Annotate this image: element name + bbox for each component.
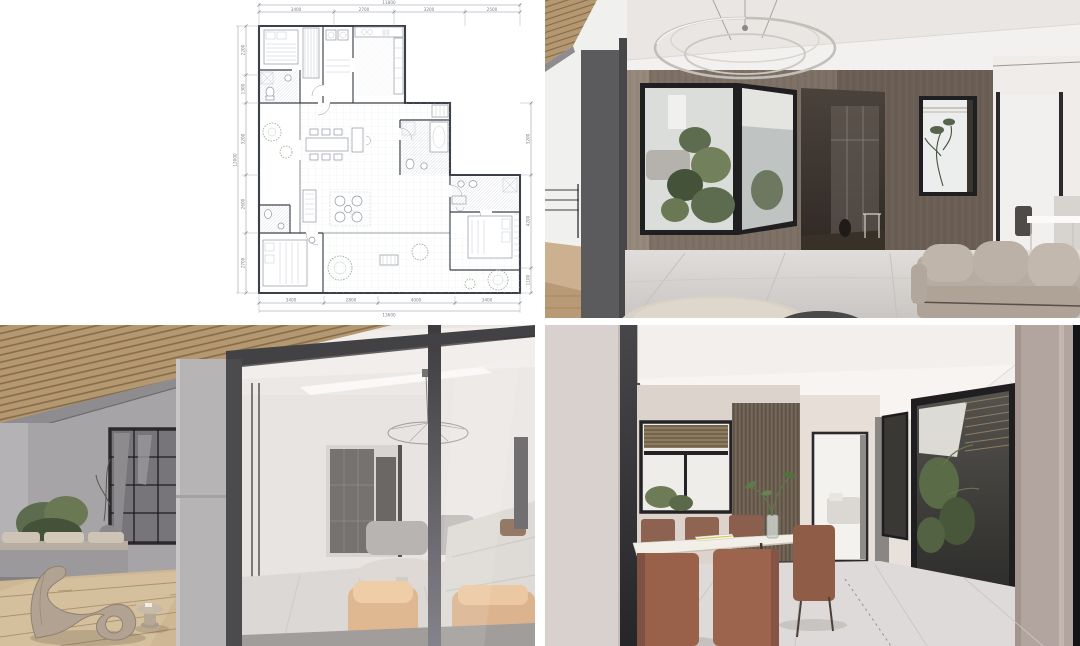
mauve-wall xyxy=(1015,325,1073,646)
plan-kitchen xyxy=(355,27,403,96)
door-leaf xyxy=(860,435,866,559)
right-black-frame xyxy=(1073,325,1080,646)
small-window xyxy=(883,413,907,539)
interior-window-blinds xyxy=(641,422,731,512)
plan-bath-topleft xyxy=(260,71,298,102)
terrace-window xyxy=(110,429,182,543)
dim-top-3: 3200 xyxy=(424,7,435,12)
dim-top-4: 2500 xyxy=(487,7,498,12)
plan-wardrobe-topleft xyxy=(303,28,319,78)
beige-sofa xyxy=(911,241,1080,318)
dim-left-2: 1300 xyxy=(241,83,246,94)
bedroom-bed-glimpse xyxy=(827,497,861,524)
dim-bottom-1: 3400 xyxy=(286,298,297,303)
dim-right-2: 4200 xyxy=(526,215,531,226)
dining-room-scene xyxy=(545,325,1080,646)
dim-right-3: 1100 xyxy=(526,274,531,285)
panel-living-room-render xyxy=(545,0,1080,318)
balcony-column xyxy=(581,50,619,318)
dining-glimpse xyxy=(993,56,1080,253)
interior-through-glass xyxy=(242,325,535,646)
dim-left-total: 12000 xyxy=(233,153,238,167)
plan-bath-bottomright xyxy=(452,177,518,210)
dim-left-3: 3200 xyxy=(241,133,246,144)
dim-bottom-3: 4000 xyxy=(411,298,422,303)
plan-bed-bottomleft xyxy=(263,237,315,286)
dim-right-1: 3200 xyxy=(526,133,531,144)
floor-plan-drawing: 11800 3400 2700 3200 2500 3400 2800 4000… xyxy=(0,0,535,318)
plan-bath-left xyxy=(260,206,289,232)
interior-design-collage: 11800 3400 2700 3200 2500 3400 2800 4000… xyxy=(0,0,1080,646)
niche-window xyxy=(919,96,977,196)
balcony-view xyxy=(545,0,627,318)
terrace-scene xyxy=(0,325,535,646)
dim-left-1: 2200 xyxy=(241,44,246,55)
dim-bottom-4: 3400 xyxy=(482,298,493,303)
left-wall xyxy=(545,325,620,646)
interior-garden-window xyxy=(640,83,797,235)
dim-bottom-total: 13600 xyxy=(382,313,396,318)
plan-bath-middle xyxy=(401,121,449,174)
living-room-scene xyxy=(545,0,1080,318)
panel-dining-room-render xyxy=(545,325,1080,646)
dining-table-far xyxy=(1027,216,1080,223)
dim-top-total: 11800 xyxy=(382,0,396,5)
panel-terrace-render xyxy=(0,325,535,646)
dark-pillar xyxy=(620,325,637,646)
dim-top-1: 3400 xyxy=(291,7,302,12)
plan-bed-topleft xyxy=(264,30,298,64)
panel-floor-plan: 11800 3400 2700 3200 2500 3400 2800 4000… xyxy=(0,0,535,318)
glass-mullion xyxy=(428,325,441,646)
dim-top-2: 2700 xyxy=(359,7,370,12)
plan-entry-closet xyxy=(432,105,448,117)
dim-bottom-2: 2800 xyxy=(346,298,357,303)
hallway-opening xyxy=(801,88,885,255)
decor-vase xyxy=(839,219,851,237)
large-window xyxy=(911,383,1015,593)
dim-left-5: 2700 xyxy=(241,257,246,268)
dim-left-4: 2600 xyxy=(241,198,246,209)
